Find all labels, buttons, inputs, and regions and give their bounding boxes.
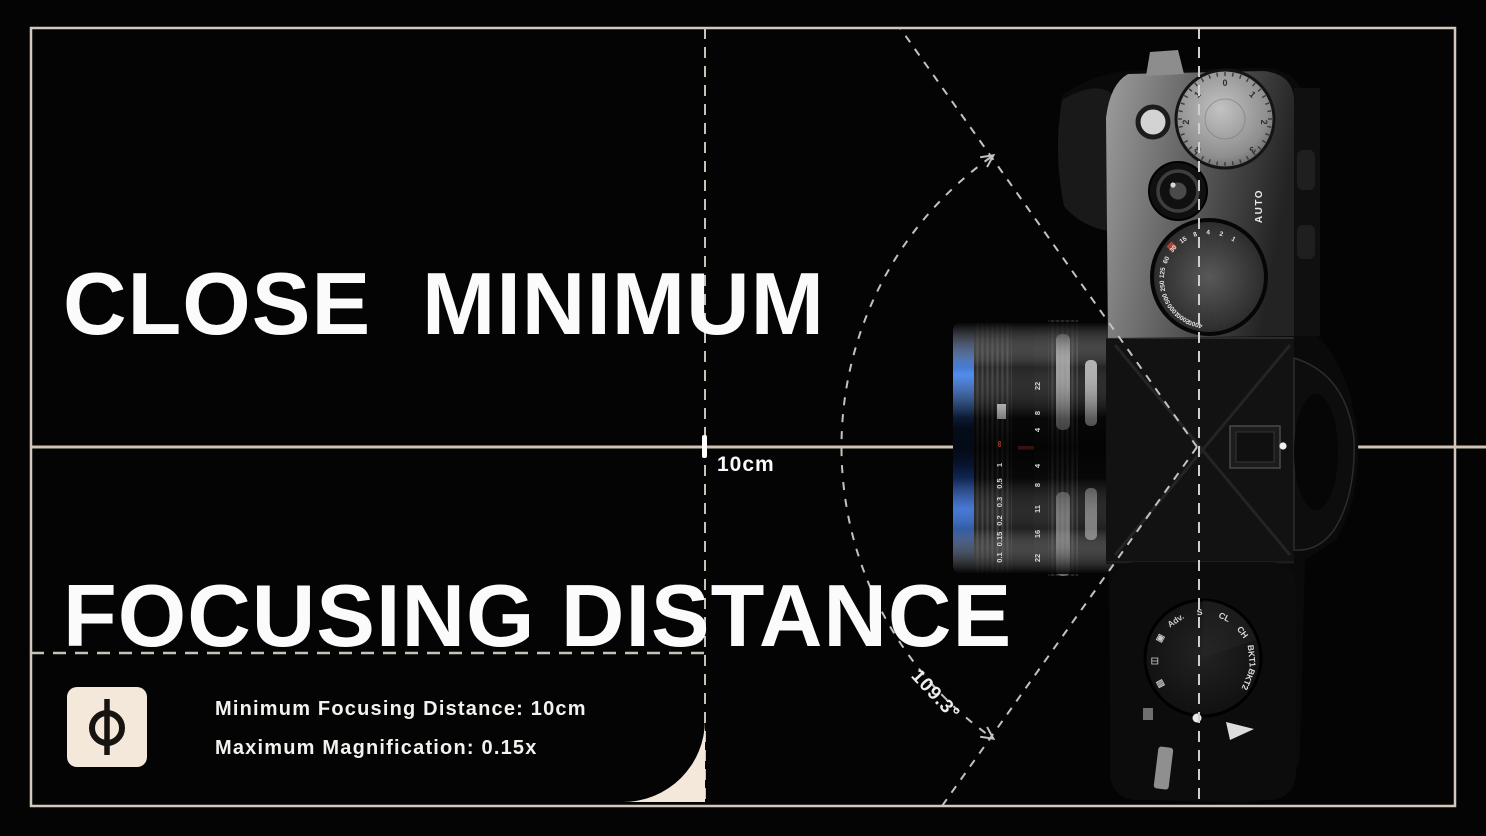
spec-min-focus-distance: Minimum Focusing Distance: 10cm [215, 690, 587, 729]
spec-max-magnification: Maximum Magnification: 0.15x [215, 729, 587, 768]
headline-line2: FOCUSING DISTANCE [63, 564, 1012, 668]
distance-label: 10cm [717, 453, 775, 477]
headline-line1: CLOSE MINIMUM [63, 252, 1012, 356]
poster: ∞10.50.30.20.150.1482248111622 [0, 0, 1486, 836]
focal-plane-symbol [67, 687, 147, 767]
spec-block: Minimum Focusing Distance: 10cm Maximum … [215, 690, 587, 768]
focal-plane-icon [67, 687, 147, 767]
